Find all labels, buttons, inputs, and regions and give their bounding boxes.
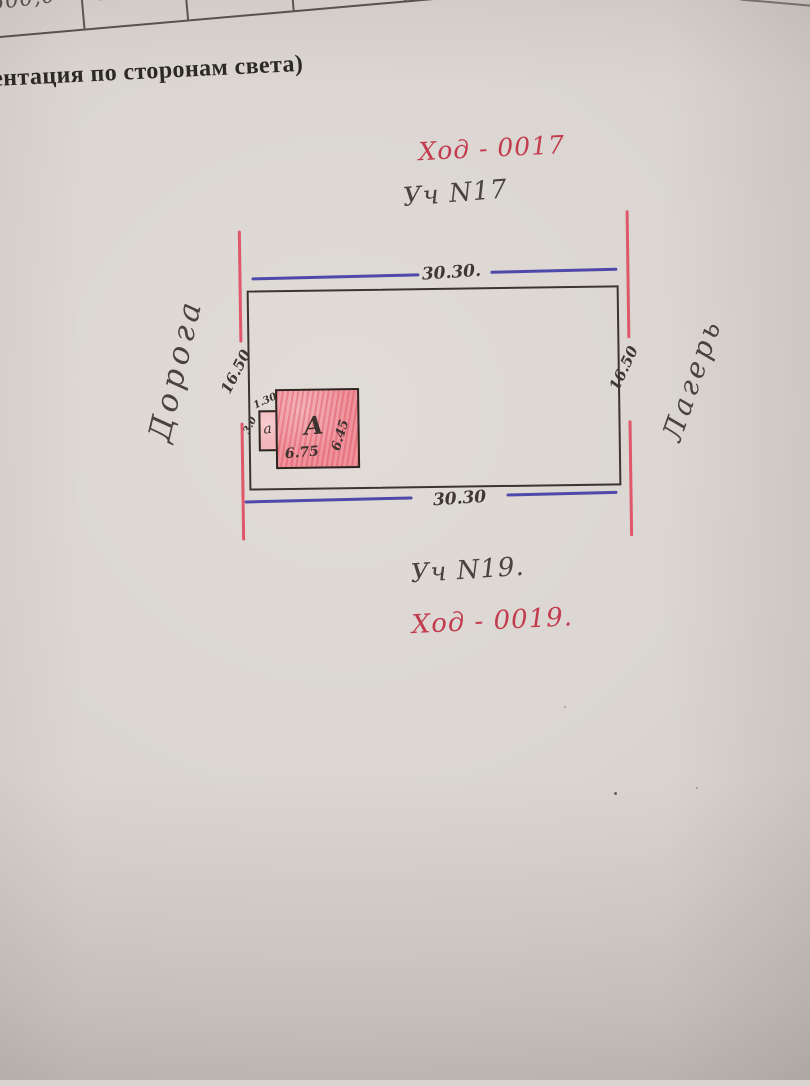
boundary-line-left-bottom [240,423,245,541]
boundary-line-left-top [238,231,243,343]
top-code-label: Ход - 0017 [418,130,566,166]
paper-speck [614,792,617,795]
site-plan: Ход - 0017 Уч N17 30.30. 30.30 16.50 16.… [0,0,810,1086]
building-label: А [302,410,325,441]
right-side-label: Лагерь [655,314,728,446]
dimension-line-bottom-left [245,496,413,503]
bottom-code-label: Ход - 0019. [411,602,574,640]
dimension-line-top-left [251,273,419,280]
dimension-line-bottom-right [506,491,617,496]
dimension-line-top-right [490,268,617,274]
top-plot-label: Уч N17 [402,174,509,213]
building-width-value: 6.75 [284,443,319,462]
boundary-line-right-bottom [628,420,633,536]
bottom-plot-label: Уч N19. [410,552,526,590]
dimension-top-value: 30.30. [421,261,481,285]
road-label: Дорога [141,294,210,445]
paper-speck [696,787,698,789]
annex-label: а [262,421,272,438]
dimension-bottom-value: 30.30 [432,487,486,510]
document-photo: 500,0 500,0 ентация по сторонам света) Х… [0,0,810,1080]
paper-speck [564,706,566,708]
boundary-line-right-top [626,210,631,338]
